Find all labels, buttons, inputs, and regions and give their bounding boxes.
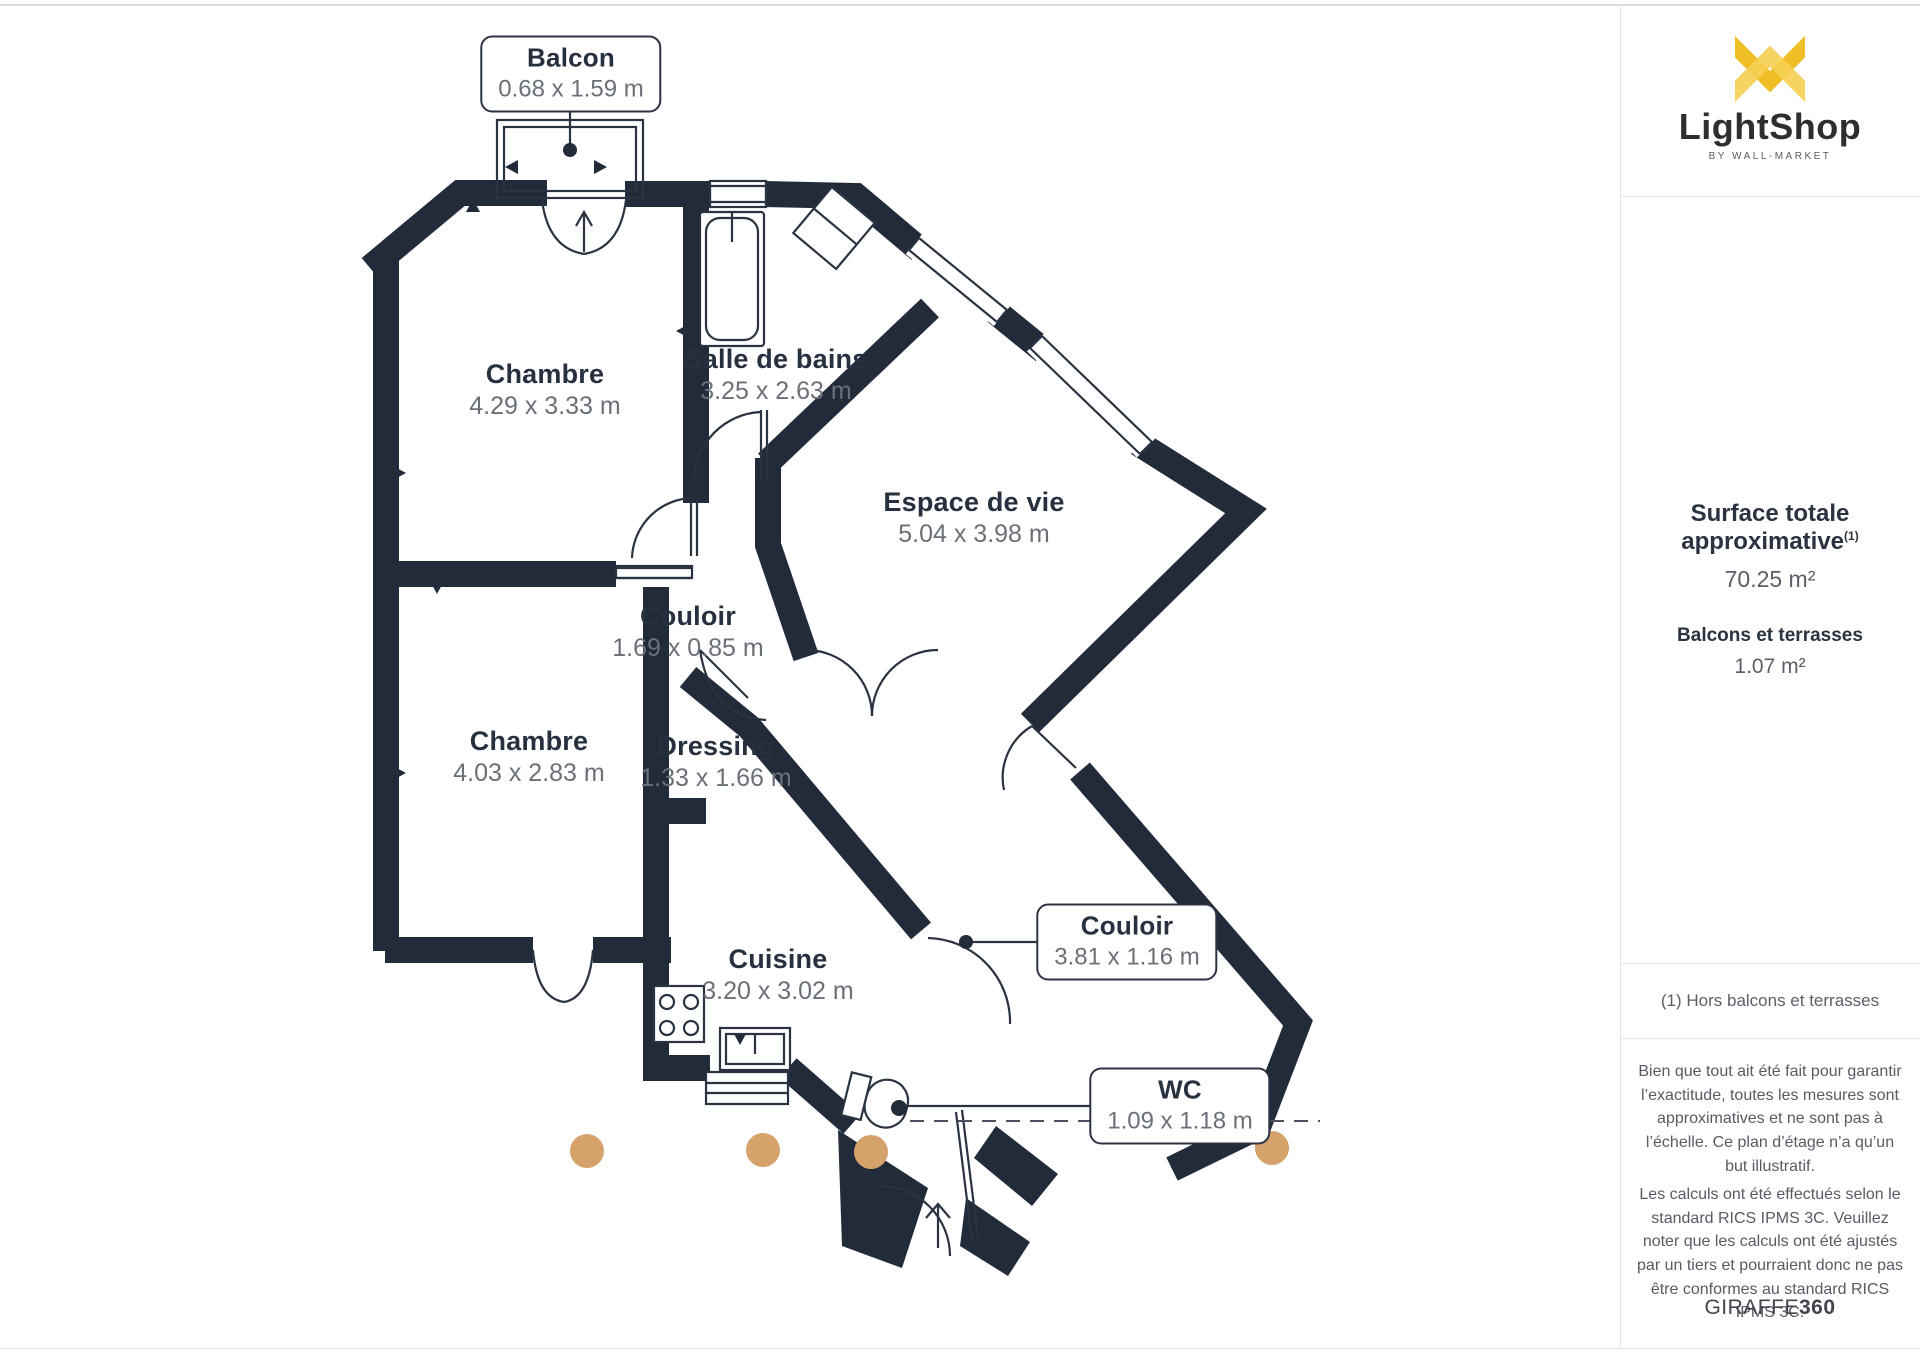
room-name: Couloir	[612, 601, 763, 632]
disclaimer-accuracy: Bien que tout ait été fait pour garantir…	[1635, 1060, 1905, 1178]
sidebar-divider	[1620, 5, 1621, 1348]
giraffe360-logo: GIRAFFE360	[1620, 1296, 1920, 1320]
room-name: Chambre	[453, 726, 604, 757]
room-dims: 3.25 x 2.63 m	[685, 377, 868, 406]
room-label-cuisine: Cuisine 3.20 x 3.02 m	[702, 944, 853, 1006]
room-name: Couloir	[1054, 911, 1199, 942]
bathtub-icon	[700, 212, 764, 346]
room-dims: 5.04 x 3.98 m	[883, 520, 1064, 549]
room-callout-wc: WC 1.09 x 1.18 m	[1089, 1068, 1270, 1145]
surface-total-label: Surface totale approximative	[1681, 500, 1849, 555]
room-dims: 3.20 x 3.02 m	[702, 977, 853, 1006]
room-callout-balcon: Balcon 0.68 x 1.59 m	[480, 36, 661, 113]
lightshop-logo-icon	[1731, 34, 1809, 104]
room-name: Espace de vie	[883, 487, 1064, 518]
stove-icon	[654, 986, 704, 1042]
room-dims: 1.09 x 1.18 m	[1107, 1108, 1252, 1136]
room-label-espace-de-vie: Espace de vie 5.04 x 3.98 m	[883, 487, 1064, 549]
lightshop-logo: LightShop BY WALL-MARKET	[1620, 34, 1920, 162]
brand-tagline: BY WALL-MARKET	[1620, 151, 1920, 162]
brand-name: LightShop	[1620, 106, 1920, 148]
room-name: Salle de bains	[685, 344, 868, 375]
room-dims: 4.29 x 3.33 m	[469, 392, 620, 421]
giraffe-360-text: 360	[1799, 1296, 1836, 1319]
room-name: WC	[1107, 1075, 1252, 1106]
room-dims: 1.69 x 0.85 m	[612, 634, 763, 663]
room-dims: 3.81 x 1.16 m	[1054, 944, 1199, 972]
room-dims: 1.33 x 1.66 m	[640, 764, 791, 793]
floorplan-page: Balcon 0.68 x 1.59 m Chambre 4.29 x 3.33…	[0, 0, 1920, 1358]
logo-divider	[1620, 196, 1920, 197]
room-name: Dressing	[640, 731, 791, 762]
footnote: (1) Hors balcons et terrasses	[1620, 963, 1920, 1039]
room-dims: 4.03 x 2.83 m	[453, 759, 604, 788]
room-name: Cuisine	[702, 944, 853, 975]
room-label-chambre-2: Chambre 4.03 x 2.83 m	[453, 726, 604, 788]
surface-footnote-marker: (1)	[1844, 529, 1859, 543]
balconies-title: Balcons et terrasses	[1630, 625, 1910, 647]
surface-total-title: Surface totale approximative(1)	[1630, 500, 1910, 556]
balconies-value: 1.07 m²	[1630, 655, 1910, 679]
sink-icon	[720, 1028, 790, 1070]
room-label-dressing: Dressing 1.33 x 1.66 m	[640, 731, 791, 793]
entrance-arrow-icon	[926, 1204, 950, 1248]
giraffe-text: GIRAFFE	[1704, 1296, 1799, 1319]
room-label-salle-de-bains: Salle de bains 3.25 x 2.63 m	[685, 344, 868, 406]
room-name: Balcon	[498, 43, 643, 74]
room-label-chambre-1: Chambre 4.29 x 3.33 m	[469, 359, 620, 421]
room-label-couloir-1: Couloir 1.69 x 0.85 m	[612, 601, 763, 663]
info-sidebar: LightShop BY WALL-MARKET Surface totale …	[1620, 0, 1920, 1358]
room-dims: 0.68 x 1.59 m	[498, 76, 643, 104]
room-name: Chambre	[469, 359, 620, 390]
room-callout-couloir-2: Couloir 3.81 x 1.16 m	[1036, 904, 1217, 981]
surface-total-value: 70.25 m²	[1630, 566, 1910, 593]
surface-summary: Surface totale approximative(1) 70.25 m²…	[1630, 500, 1910, 679]
